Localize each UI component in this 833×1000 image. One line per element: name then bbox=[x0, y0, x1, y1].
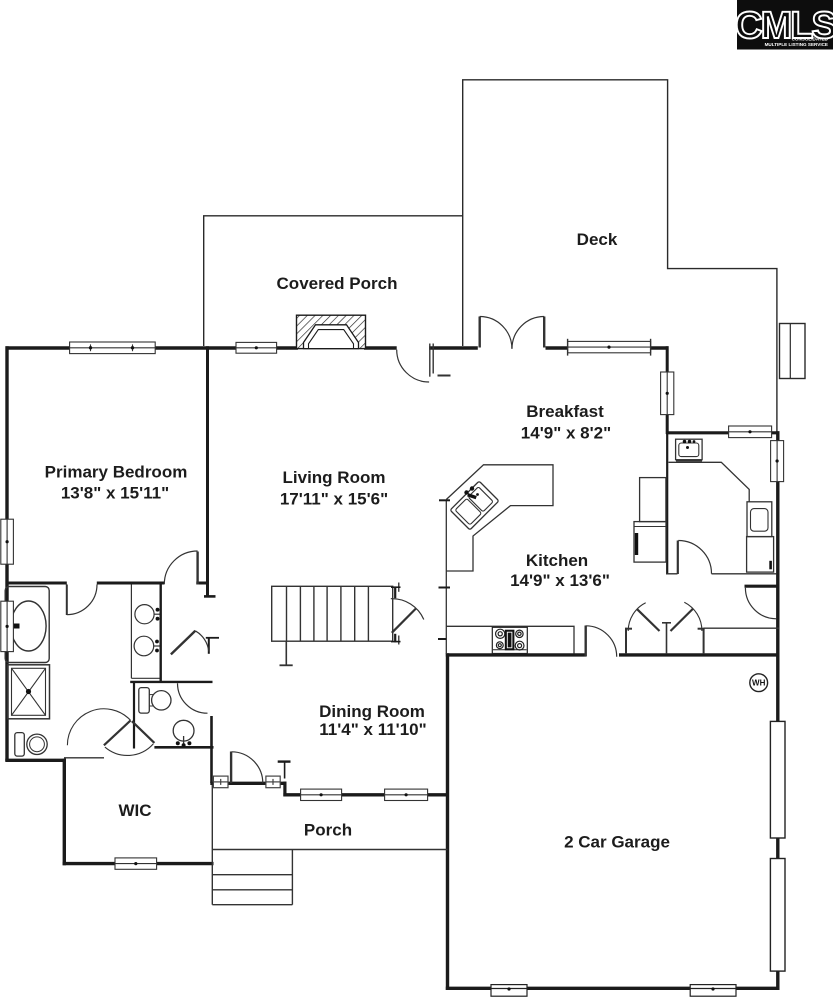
svg-text:Deck: Deck bbox=[577, 230, 618, 249]
svg-text:Dining Room: Dining Room bbox=[319, 702, 425, 721]
svg-text:CONSOLIDATED: CONSOLIDATED bbox=[792, 37, 829, 42]
svg-text:Porch: Porch bbox=[304, 821, 352, 840]
svg-text:MULTIPLE LISTING SERVICE: MULTIPLE LISTING SERVICE bbox=[765, 42, 828, 47]
svg-text:Primary Bedroom: Primary Bedroom bbox=[45, 463, 188, 482]
svg-text:2 Car Garage: 2 Car Garage bbox=[564, 833, 670, 852]
svg-text:14'9" x 8'2": 14'9" x 8'2" bbox=[521, 424, 611, 443]
svg-text:Living Room: Living Room bbox=[283, 468, 386, 487]
svg-text:13'8" x 15'11": 13'8" x 15'11" bbox=[61, 484, 169, 503]
svg-text:11'4" x 11'10": 11'4" x 11'10" bbox=[319, 720, 426, 739]
svg-text:WIC: WIC bbox=[118, 801, 151, 820]
svg-text:Covered Porch: Covered Porch bbox=[277, 274, 398, 293]
svg-text:14'9" x 13'6": 14'9" x 13'6" bbox=[510, 571, 610, 590]
svg-text:17'11" x 15'6": 17'11" x 15'6" bbox=[280, 490, 388, 509]
svg-text:Breakfast: Breakfast bbox=[526, 402, 604, 421]
svg-text:Kitchen: Kitchen bbox=[526, 551, 588, 570]
